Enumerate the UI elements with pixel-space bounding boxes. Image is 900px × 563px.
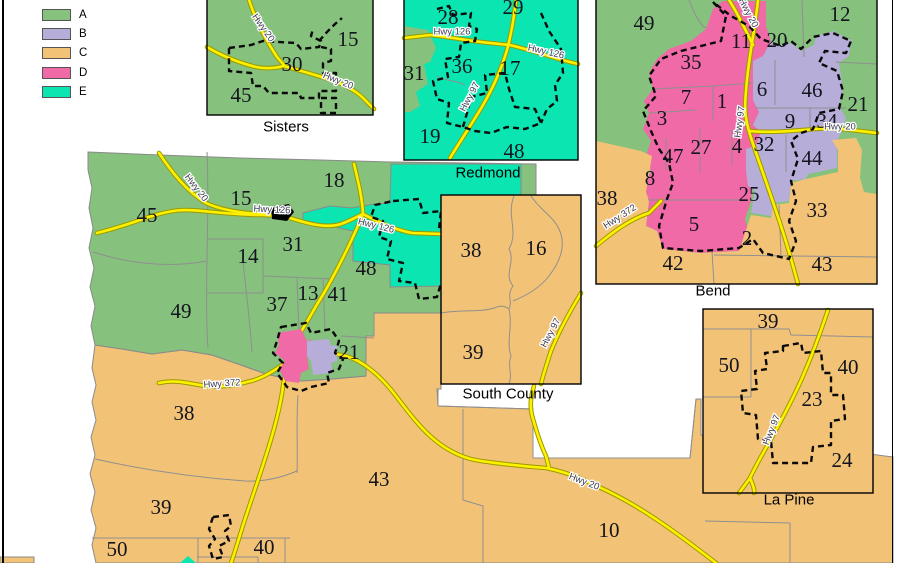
legend-swatch-B [42,28,71,40]
precinct-number: 43 [812,252,833,276]
precinct-number: 48 [504,139,525,163]
precinct-number: 23 [802,387,823,411]
legend-swatch-D [42,67,71,79]
precinct-number: 48 [356,256,377,280]
precinct-number: 37 [267,292,288,316]
legend-label: D [79,67,87,79]
precinct-number: 29 [503,0,524,19]
inset-caption: Sisters [263,119,309,136]
inset-caption: La Pine [764,492,815,509]
inset-caption: South County [463,386,554,403]
precinct-number: 49 [171,299,192,323]
precinct-number: 14 [238,244,260,268]
precinct-number: 49 [634,11,655,35]
legend-label: E [79,86,87,98]
precinct-number: 38 [597,186,618,210]
precinct-number: 11 [731,29,751,53]
precinct-number: 38 [461,238,482,262]
precinct-number: 7 [681,85,692,109]
legend-item-B[interactable]: B [42,24,87,43]
legend-swatch-E [42,86,71,98]
precinct-number: 10 [599,518,620,542]
precinct-number: 24 [832,448,854,472]
neatline-right [892,0,894,563]
precinct-number: 19 [420,124,441,148]
precinct-number: 12 [830,2,851,26]
legend-item-A[interactable]: A [42,5,87,24]
precinct-number: 13 [298,281,319,305]
precinct-number: 27 [691,135,712,159]
precinct-number: 31 [283,232,304,256]
precinct-number: 50 [719,353,740,377]
precinct-number: 46 [802,78,823,102]
precinct-number: 41 [328,282,349,306]
precinct-number: 50 [107,537,128,561]
precinct-number: 43 [369,467,390,491]
precinct-number: 25 [739,182,760,206]
precinct-number: 21 [339,340,360,364]
precinct-number: 42 [663,251,684,275]
precinct-number: 30 [282,52,303,76]
precinct-number: 33 [807,198,828,222]
precinct-number: 44 [802,146,824,170]
precinct-number: 39 [463,340,484,364]
precinct-number: 20 [767,28,788,52]
precinct-number: 18 [324,168,345,192]
precinct-number: 39 [151,495,172,519]
main-region-orange-sliver [0,557,34,563]
legend: ABCDE [42,5,87,102]
precinct-number: 3 [657,106,668,130]
precinct-number: 36 [452,54,473,78]
precinct-number: 40 [838,355,859,379]
precinct-number: 9 [785,109,796,133]
precinct-number: 17 [500,56,521,80]
precinct-number: 1 [717,89,728,113]
precinct-number: 28 [438,5,459,29]
precinct-number: 38 [174,401,195,425]
inset-caption: Bend [695,283,730,300]
highway-label: Hwy 126 [434,27,471,38]
precinct-number: 5 [689,212,700,236]
precinct-number: 35 [681,50,702,74]
precinct-number: 16 [526,236,547,260]
precinct-number: 21 [848,92,869,116]
legend-item-C[interactable]: C [42,44,87,63]
legend-swatch-C [42,47,71,59]
legend-label: C [79,47,87,59]
inset-caption: Redmond [455,165,520,182]
precinct-number: 47 [663,144,684,168]
legend-label: B [79,28,87,40]
precinct-number: 45 [231,83,252,107]
legend-swatch-A [42,9,71,21]
precinct-number: 6 [757,77,768,101]
precinct-number: 31 [404,61,425,85]
precinct-number: 8 [645,166,656,190]
legend-item-E[interactable]: E [42,83,87,102]
precinct-number: 2 [742,226,753,250]
precinct-number: 39 [758,309,779,333]
precinct-number: 15 [338,27,359,51]
highway-label: Hwy 126 [253,204,290,217]
precinct-map-page: 4515181431484937134121383950404310 15304… [0,0,900,563]
legend-label: A [79,9,87,21]
highway-label: Hwy 20 [824,122,856,133]
precinct-number: 32 [754,132,775,156]
legend-item-D[interactable]: D [42,63,87,82]
map-canvas: 4515181431484937134121383950404310 15304… [0,0,900,563]
precinct-number: 15 [231,186,252,210]
neatline-left [2,0,4,563]
precinct-number: 45 [137,203,158,227]
precinct-number: 40 [254,535,275,559]
